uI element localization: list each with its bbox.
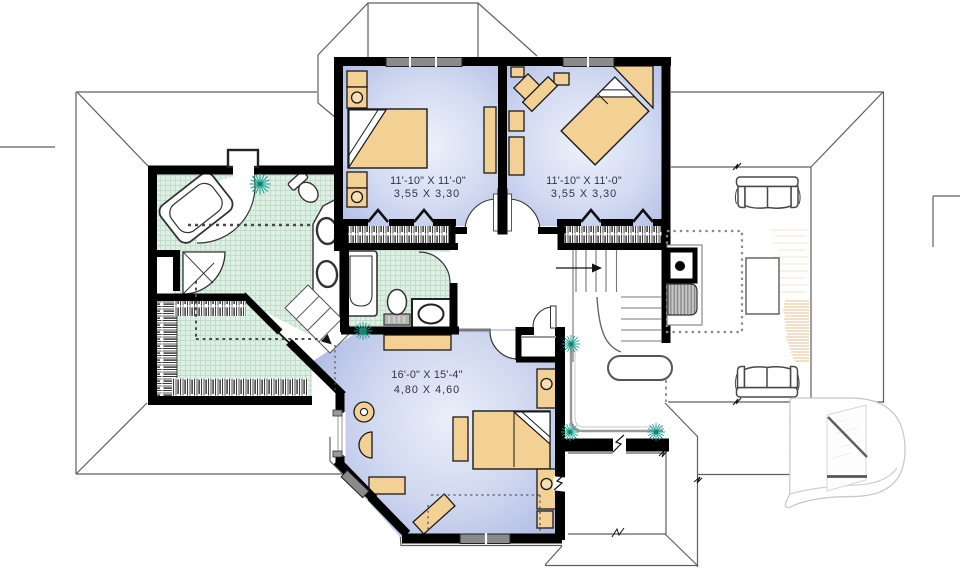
svg-text:3,55 X 3,30: 3,55 X 3,30 [394,188,460,200]
svg-text:11'-10" X 11'-0": 11'-10" X 11'-0" [546,175,622,187]
svg-text:3,55 X 3,30: 3,55 X 3,30 [551,188,617,200]
svg-text:4,80 X 4,60: 4,80 X 4,60 [394,384,460,396]
svg-text:16'-0" X 15'-4": 16'-0" X 15'-4" [391,369,462,381]
svg-text:11'-10" X 11'-0": 11'-10" X 11'-0" [390,175,466,187]
